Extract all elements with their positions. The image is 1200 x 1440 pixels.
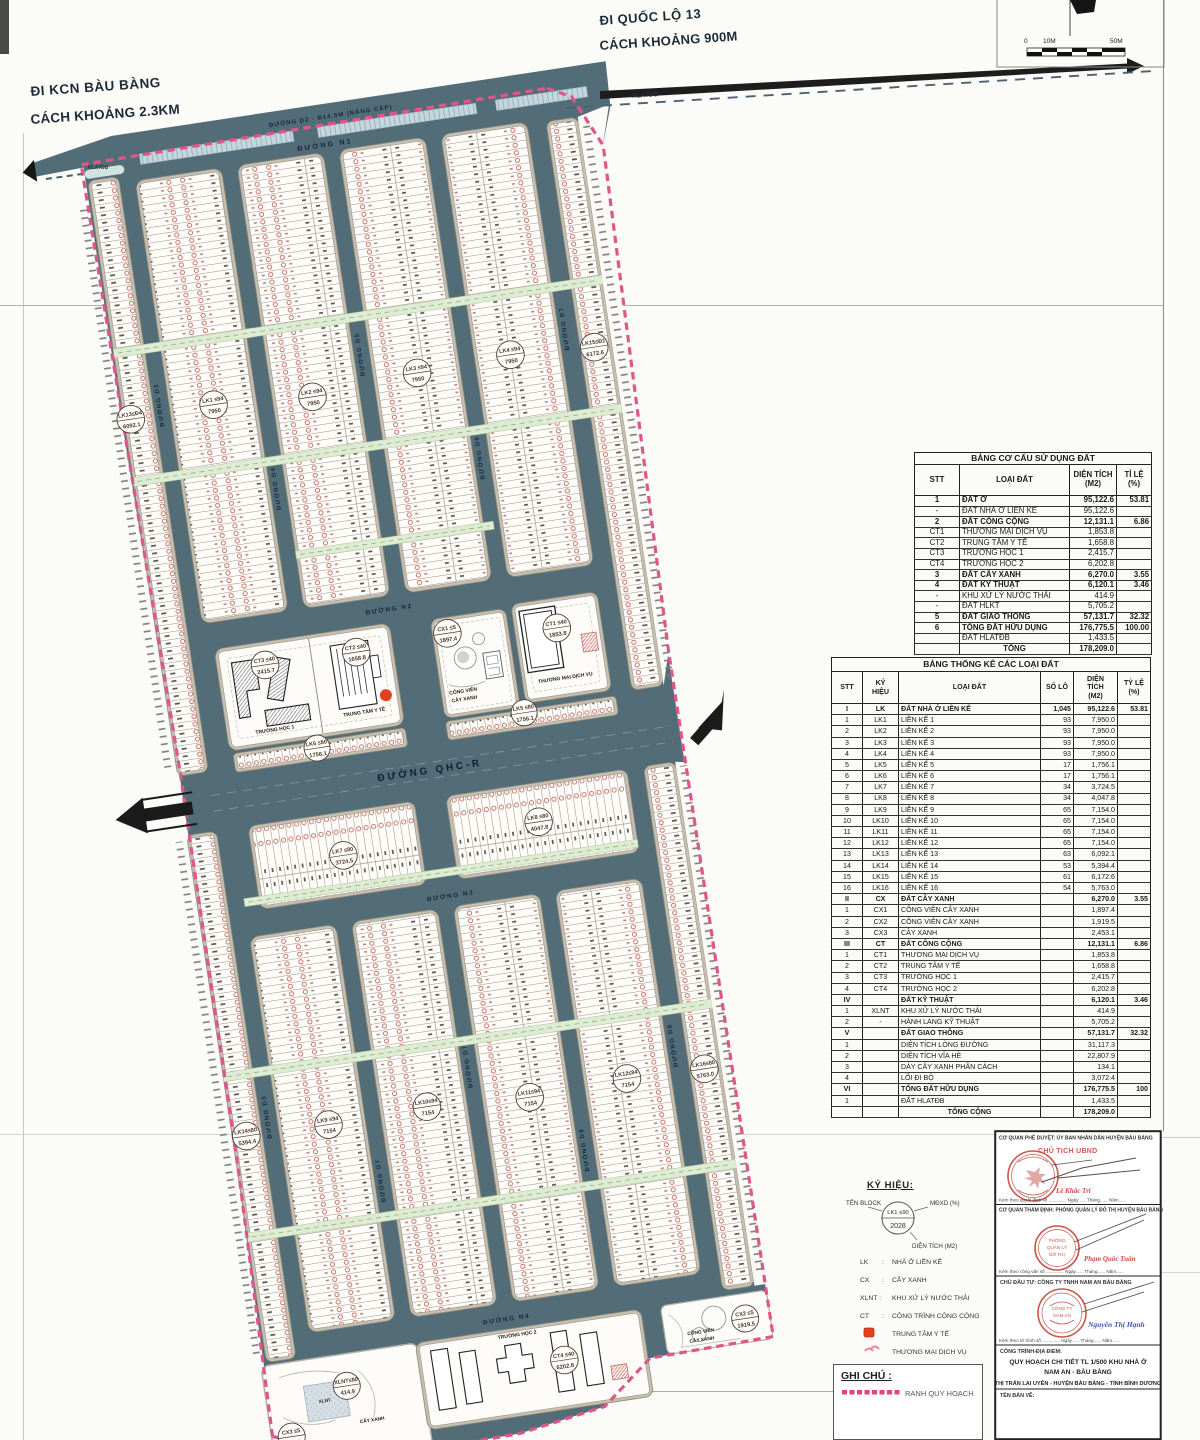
svg-text:CX: CX xyxy=(860,1277,870,1284)
svg-text:TÊN BẢN VẼ:: TÊN BẢN VẼ: xyxy=(1000,1391,1035,1399)
svg-text:TÊN BLOCK: TÊN BLOCK xyxy=(846,1199,882,1207)
svg-text:Lê Khắc Tri: Lê Khắc Tri xyxy=(1055,1187,1091,1195)
svg-text:2028: 2028 xyxy=(890,1223,906,1230)
svg-text::: : xyxy=(882,1259,884,1266)
svg-text:CÔNG TY: CÔNG TY xyxy=(1052,1305,1073,1311)
svg-text:KHU XỬ LÝ NƯỚC THẢI: KHU XỬ LÝ NƯỚC THẢI xyxy=(892,1293,969,1302)
svg-text:CƠ QUAN THẨM ĐỊNH: PHÒNG QUẢN: CƠ QUAN THẨM ĐỊNH: PHÒNG QUẢN LÝ ĐÔ THỊ … xyxy=(999,1206,1163,1214)
svg-text:LK: LK xyxy=(860,1259,869,1266)
svg-text:CHỦ TỊCH UBND: CHỦ TỊCH UBND xyxy=(1038,1146,1098,1155)
svg-text:Nguyễn Thị Hạnh: Nguyễn Thị Hạnh xyxy=(1087,1320,1145,1329)
svg-text::: : xyxy=(882,1313,884,1320)
svg-text:Phạm Quốc Tuấn: Phạm Quốc Tuấn xyxy=(1084,1255,1136,1263)
svg-text:CÂY XANH: CÂY XANH xyxy=(892,1275,927,1284)
svg-text:NHÀ Ở LIỀN KẾ: NHÀ Ở LIỀN KẾ xyxy=(892,1256,942,1266)
svg-text:ĐÔ THỊ: ĐÔ THỊ xyxy=(1049,1251,1064,1257)
svg-text:Kèm theo công văn số .........: Kèm theo công văn số .............. Ngày… xyxy=(999,1269,1124,1274)
svg-text:DIỆN TÍCH (M2): DIỆN TÍCH (M2) xyxy=(912,1242,957,1250)
svg-text:PHÒNG: PHÒNG xyxy=(1049,1237,1066,1243)
svg-text:THỊ TRẤN LAI UYÊN - HUYỆN BÀU: THỊ TRẤN LAI UYÊN - HUYỆN BÀU BÀNG - TỈN… xyxy=(995,1379,1162,1387)
svg-text:HLATĐB: HLATĐB xyxy=(88,165,109,171)
svg-text:LK1 ≤90: LK1 ≤90 xyxy=(887,1210,909,1216)
svg-text:CT: CT xyxy=(860,1313,869,1320)
svg-text:Kèm theo tờ trình số .........: Kèm theo tờ trình số .............. Ngày… xyxy=(999,1338,1120,1343)
svg-text:MĐXD (%): MĐXD (%) xyxy=(930,1200,960,1207)
svg-text:QUẢN LÝ: QUẢN LÝ xyxy=(1047,1244,1067,1250)
svg-text:NAM AN - BÀU BÀNG: NAM AN - BÀU BÀNG xyxy=(1044,1367,1112,1376)
svg-text:TRUNG TÂM Y TẾ: TRUNG TÂM Y TẾ xyxy=(892,1328,949,1338)
svg-text:CÔNG TRÌNH CÔNG CỘNG: CÔNG TRÌNH CÔNG CỘNG xyxy=(892,1311,979,1320)
svg-text:CƠ QUAN PHÊ DUYỆT: ỦY BAN NHÂ: CƠ QUAN PHÊ DUYỆT: ỦY BAN NHÂN DÂN HUYỆN… xyxy=(999,1134,1153,1142)
svg-text::: : xyxy=(882,1277,884,1284)
svg-text:Kèm theo quyết định số .......: Kèm theo quyết định số .............. Ng… xyxy=(999,1198,1126,1203)
svg-text:CHỦ ĐẦU TƯ: CÔNG TY TNHH NAM: CHỦ ĐẦU TƯ: CÔNG TY TNHH NAM AN BÀU BÀNG xyxy=(1000,1278,1132,1286)
svg-text:THƯƠNG MẠI DỊCH VỤ: THƯƠNG MẠI DỊCH VỤ xyxy=(892,1349,967,1356)
svg-text:CÔNG TRÌNH-ĐỊA ĐIỂM:: CÔNG TRÌNH-ĐỊA ĐIỂM: xyxy=(1000,1347,1062,1355)
svg-text:RANH QUY HOẠCH: RANH QUY HOẠCH xyxy=(905,1389,974,1398)
svg-text:GHI CHÚ :: GHI CHÚ : xyxy=(841,1369,892,1382)
svg-text:NAM AN: NAM AN xyxy=(1053,1313,1071,1318)
svg-text:XLNT :: XLNT : xyxy=(860,1295,881,1302)
